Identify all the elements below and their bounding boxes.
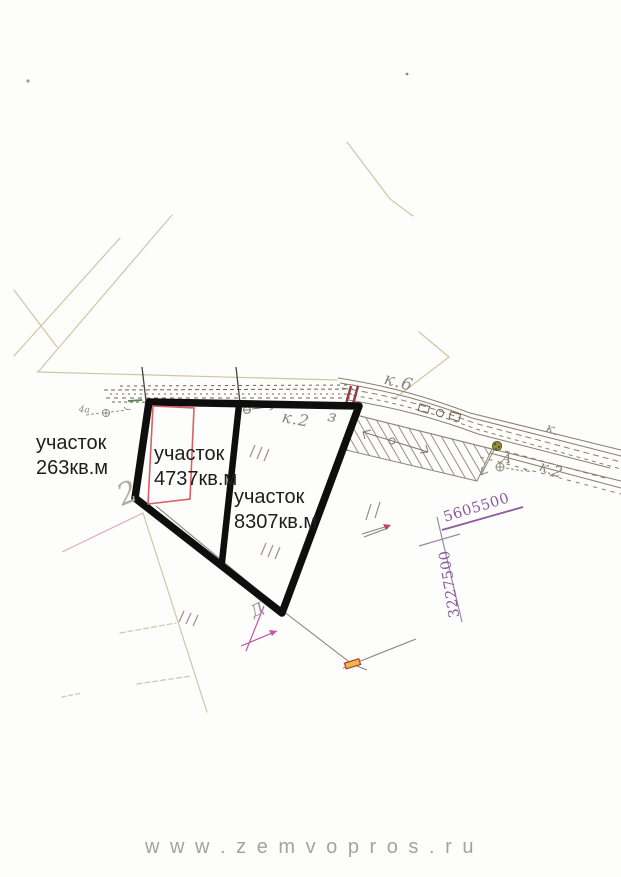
plot-name: участок bbox=[36, 431, 108, 456]
pink-scan-line bbox=[62, 513, 143, 552]
plot-area: 263кв.м bbox=[36, 456, 108, 481]
watermark: w w w . z e m v o p r o s . r u bbox=[0, 836, 621, 859]
scan-speck-2 bbox=[26, 79, 29, 82]
plot-area: 4737кв.м bbox=[154, 467, 237, 492]
plot-name: участок bbox=[234, 485, 317, 510]
tree-symbol bbox=[492, 441, 501, 450]
plot-label-4737: участок 4737кв.м bbox=[154, 442, 237, 492]
survey-symbol-left bbox=[86, 407, 131, 417]
plot-area: 8307кв.м bbox=[234, 510, 317, 535]
plot-label-263: участок 263кв.м bbox=[36, 431, 108, 481]
dimension-mark bbox=[362, 502, 388, 537]
scan-speck bbox=[406, 73, 409, 76]
grid-cross-lines bbox=[419, 507, 523, 622]
plot-label-8307: участок 8307кв.м bbox=[234, 485, 317, 535]
green-mark bbox=[128, 400, 142, 401]
plot-name: участок bbox=[154, 442, 237, 467]
annotation-point-4a: 4а bbox=[78, 405, 90, 416]
hatched-area bbox=[346, 415, 492, 481]
cadastral-map: участок 263кв.м участок 4737кв.м участок… bbox=[0, 0, 621, 877]
